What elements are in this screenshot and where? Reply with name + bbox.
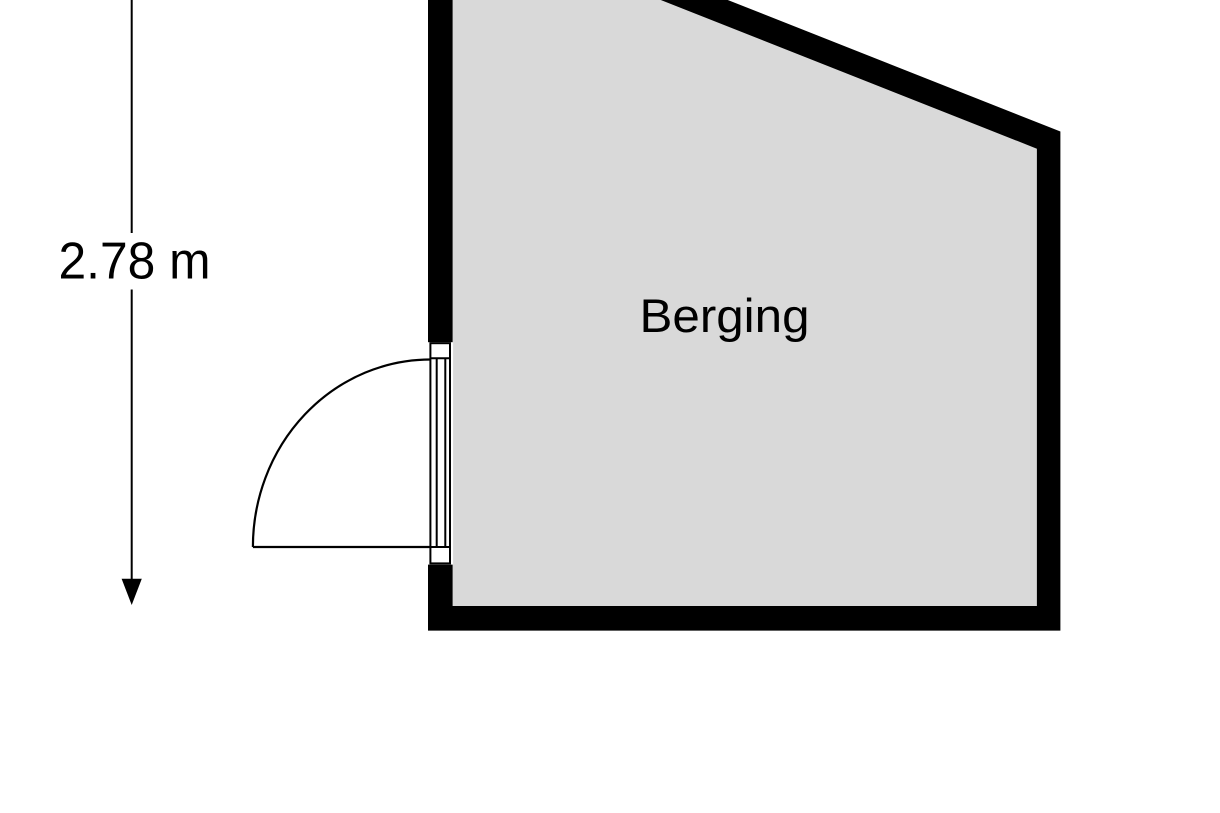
svg-text:2.78 m: 2.78 m	[59, 233, 211, 291]
svg-text:Berging: Berging	[640, 289, 810, 342]
